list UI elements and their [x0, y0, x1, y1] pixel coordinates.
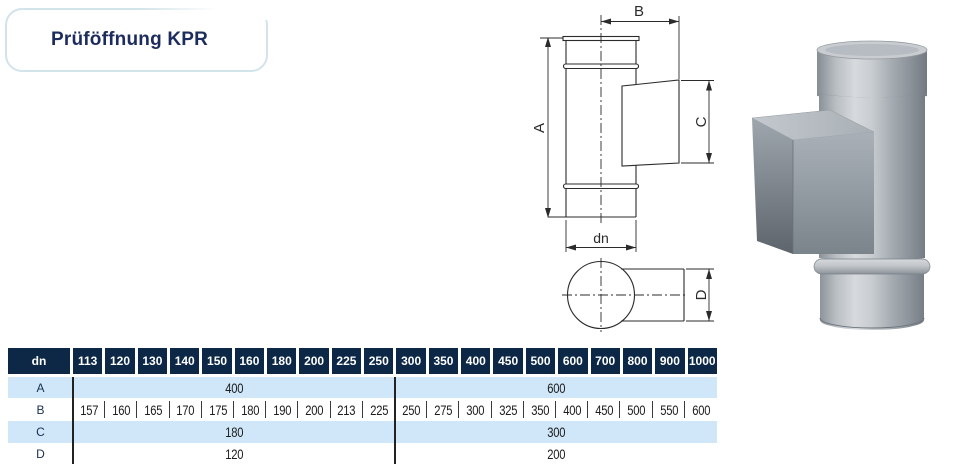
- row-label-d: D: [8, 443, 73, 465]
- header-cell: 500: [526, 348, 558, 374]
- value-b-cell: 165: [137, 398, 169, 421]
- value-b-cell: 190: [266, 398, 298, 421]
- row-label-a: A: [8, 377, 73, 398]
- value-b-cell: 500: [620, 398, 652, 421]
- value-b-cell: 325: [492, 398, 524, 421]
- header-columns: 1131201301401501601802002252503003504004…: [73, 348, 717, 374]
- row-label-b: B: [8, 398, 73, 421]
- table-row-c: C 180 300: [8, 421, 717, 443]
- table-divider-left: [72, 377, 74, 464]
- header-cell: 225: [332, 348, 364, 374]
- value-b-cell: 600: [685, 398, 717, 421]
- dimensions-table: dn 1131201301401501601802002252503003504…: [8, 348, 717, 465]
- value-b-cell: 275: [427, 398, 459, 421]
- inspection-box: [752, 110, 874, 254]
- header-cell: 900: [655, 348, 687, 374]
- header-cell: 300: [396, 348, 428, 374]
- value-b-cell: 450: [588, 398, 620, 421]
- header-cell: 700: [591, 348, 623, 374]
- value-b-cell: 550: [653, 398, 685, 421]
- value-b-cell: 213: [331, 398, 363, 421]
- header-cell: 120: [105, 348, 137, 374]
- header-cell: 1000: [688, 348, 717, 374]
- value-b-cell: 200: [298, 398, 330, 421]
- header-cell: 450: [493, 348, 525, 374]
- table-divider-groups: [394, 377, 396, 464]
- value-b-cell: 250: [395, 398, 427, 421]
- value-c-group2: 300: [547, 424, 565, 440]
- pipe-bead: [814, 259, 930, 274]
- header-cell: 113: [73, 348, 105, 374]
- value-b-cell: 300: [459, 398, 491, 421]
- value-b-cell: 400: [556, 398, 588, 421]
- value-c-group1: 180: [225, 424, 243, 440]
- value-b-cell: 157: [73, 398, 105, 421]
- value-a-group1: 400: [225, 379, 243, 395]
- header-cell: 150: [202, 348, 234, 374]
- page-title: Prüföffnung KPR: [51, 29, 208, 51]
- value-d-group2: 200: [547, 446, 565, 462]
- table-header-row: dn 1131201301401501601802002252503003504…: [8, 348, 717, 374]
- row-label-c: C: [8, 421, 73, 443]
- header-cell: 160: [235, 348, 267, 374]
- header-cell-dn: dn: [8, 348, 73, 374]
- value-b-cell: 180: [234, 398, 266, 421]
- table-row-a: A 400 600: [8, 377, 717, 398]
- value-b-cell: 350: [524, 398, 556, 421]
- header-cell: 250: [364, 348, 396, 374]
- header-cell: 800: [623, 348, 655, 374]
- header-cell: 130: [138, 348, 170, 374]
- value-b-cell: 160: [105, 398, 137, 421]
- header-cell: 600: [558, 348, 590, 374]
- header-cell: 140: [170, 348, 202, 374]
- value-d-group1: 120: [225, 446, 243, 462]
- header-cell: 400: [461, 348, 493, 374]
- header-cell: 200: [299, 348, 331, 374]
- value-b-cell: 225: [363, 398, 395, 421]
- value-a-group2: 600: [547, 379, 565, 395]
- header-cell: 350: [429, 348, 461, 374]
- value-b-cell: 175: [202, 398, 234, 421]
- header-cell: 180: [267, 348, 299, 374]
- value-b-cell: 170: [170, 398, 202, 421]
- table-row-b: B 15716016517017518019020021322525027530…: [8, 398, 717, 421]
- table-row-d: D 120 200: [8, 443, 717, 465]
